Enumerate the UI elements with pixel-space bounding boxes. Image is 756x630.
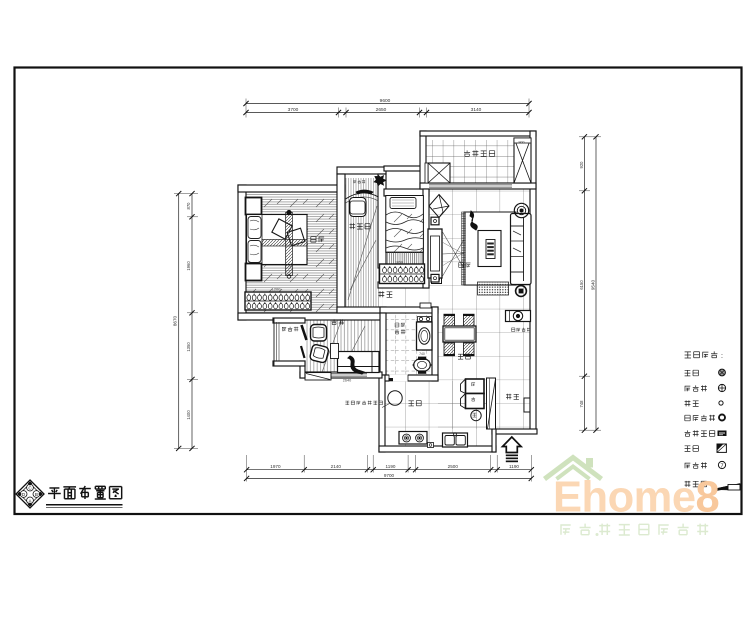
svg-text:Ehome8: Ehome8: [553, 474, 719, 522]
svg-text:6150: 6150: [579, 280, 584, 290]
svg-text:1350: 1350: [186, 342, 191, 352]
svg-text:1190: 1190: [386, 464, 396, 469]
svg-text:900: 900: [519, 141, 525, 145]
svg-text:1400: 1400: [186, 410, 191, 420]
svg-text:2650: 2650: [376, 107, 387, 113]
svg-text:B: B: [35, 492, 38, 497]
svg-text::: :: [721, 353, 723, 360]
svg-text:2140: 2140: [331, 464, 342, 469]
svg-text:748: 748: [579, 400, 584, 408]
svg-text:920: 920: [579, 161, 584, 169]
svg-text:9600: 9600: [380, 98, 391, 104]
svg-text:9540: 9540: [591, 279, 596, 290]
svg-text:9700: 9700: [384, 473, 395, 478]
svg-text:1050: 1050: [395, 261, 403, 265]
svg-text:740: 740: [419, 352, 425, 356]
svg-text:1960: 1960: [186, 261, 191, 271]
svg-text:7: 7: [721, 463, 724, 469]
svg-text:3140: 3140: [471, 107, 482, 113]
svg-text:870: 870: [186, 202, 191, 210]
svg-text:2500: 2500: [448, 464, 459, 469]
svg-text:8670: 8670: [173, 315, 178, 326]
svg-text:1190: 1190: [509, 464, 519, 469]
svg-text:3700: 3700: [288, 107, 299, 113]
svg-text:1200: 1200: [272, 287, 282, 292]
svg-text:1970: 1970: [270, 464, 281, 469]
svg-text:2640: 2640: [343, 379, 351, 383]
